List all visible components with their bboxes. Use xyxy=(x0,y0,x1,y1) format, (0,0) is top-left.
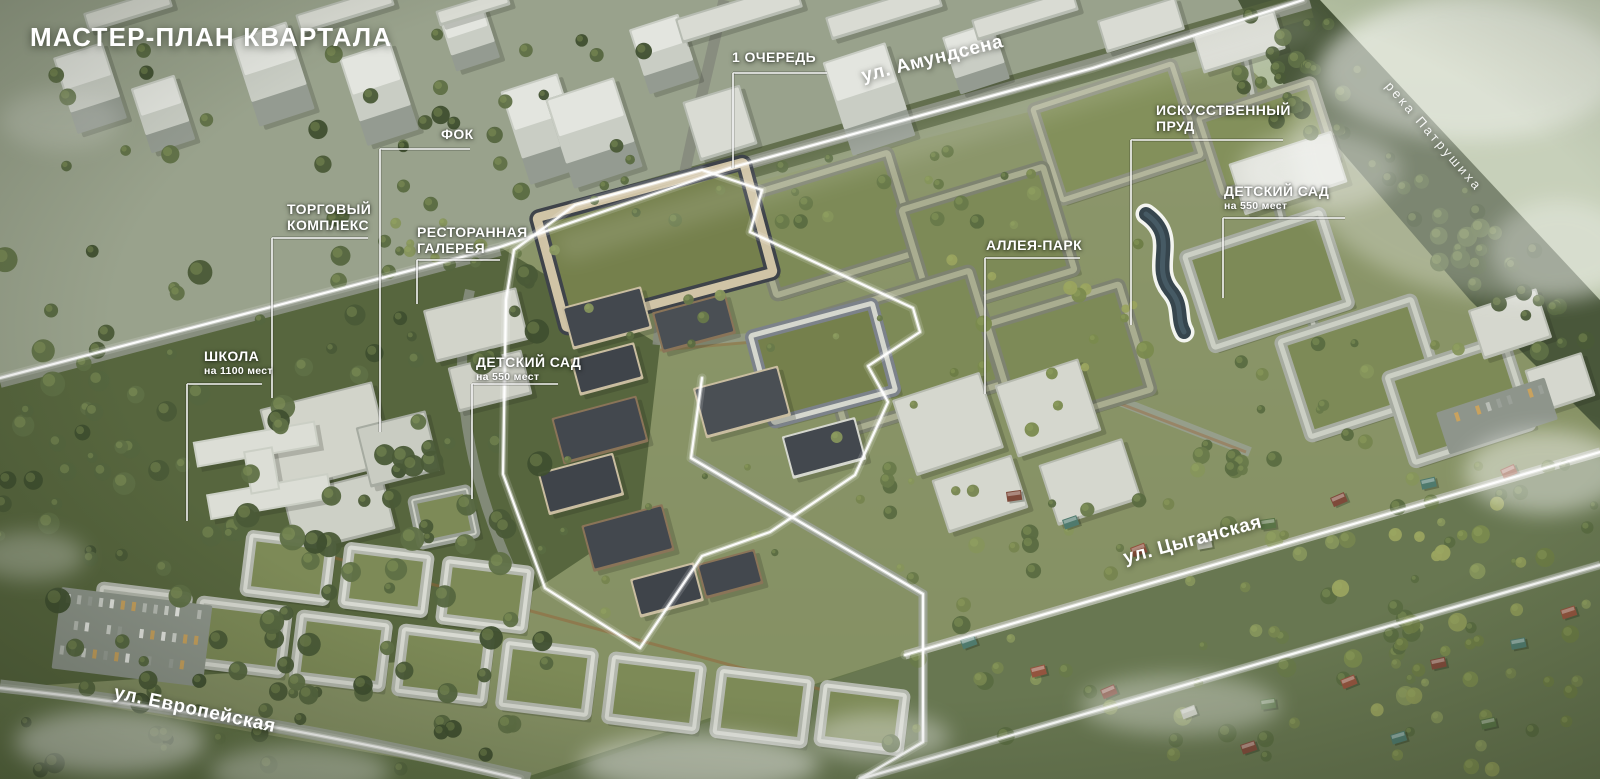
label-alley-park: АЛЛЕЯ-ПАРК xyxy=(986,238,1082,254)
label-kindergarten-center-text: ДЕТСКИЙ САД xyxy=(476,355,581,371)
label-shopping-line1: ТОРГОВЫЙ xyxy=(287,202,371,218)
label-school-text: ШКОЛА xyxy=(204,349,273,365)
aerial-render xyxy=(0,0,1600,779)
label-fok-text: ФОК xyxy=(441,127,474,143)
label-school: ШКОЛА на 1100 мест xyxy=(204,349,273,378)
label-kindergarten-center-capacity: на 550 мест xyxy=(476,372,581,384)
page-title: МАСТЕР-ПЛАН КВАРТАЛА xyxy=(30,22,392,53)
label-alley-park-text: АЛЛЕЯ-ПАРК xyxy=(986,238,1082,254)
vignette xyxy=(0,0,1600,779)
label-phase1: 1 ОЧЕРЕДЬ xyxy=(732,50,816,66)
label-shopping-complex: ТОРГОВЫЙ КОМПЛЕКС xyxy=(287,202,371,234)
masterplan-slide: МАСТЕР-ПЛАН КВАРТАЛА 1 ОЧЕРЕДЬ ФОК ТОРГО… xyxy=(0,0,1600,779)
label-pond-line2: ПРУД xyxy=(1156,119,1291,135)
label-kindergarten-center: ДЕТСКИЙ САД на 550 мест xyxy=(476,355,581,384)
label-kindergarten-right-capacity: на 550 мест xyxy=(1224,201,1329,213)
label-school-capacity: на 1100 мест xyxy=(204,366,273,378)
label-phase1-text: 1 ОЧЕРЕДЬ xyxy=(732,50,816,66)
label-restaurant-gallery: РЕСТОРАННАЯ ГАЛЕРЕЯ xyxy=(417,225,528,257)
label-kindergarten-right: ДЕТСКИЙ САД на 550 мест xyxy=(1224,184,1329,213)
label-pond-line1: ИСКУССТВЕННЫЙ xyxy=(1156,103,1291,119)
label-restaurant-line1: РЕСТОРАННАЯ xyxy=(417,225,528,241)
label-fok: ФОК xyxy=(441,127,474,143)
label-restaurant-line2: ГАЛЕРЕЯ xyxy=(417,241,528,257)
label-artificial-pond: ИСКУССТВЕННЫЙ ПРУД xyxy=(1156,103,1291,135)
label-kindergarten-right-text: ДЕТСКИЙ САД xyxy=(1224,184,1329,200)
label-shopping-line2: КОМПЛЕКС xyxy=(287,218,371,234)
